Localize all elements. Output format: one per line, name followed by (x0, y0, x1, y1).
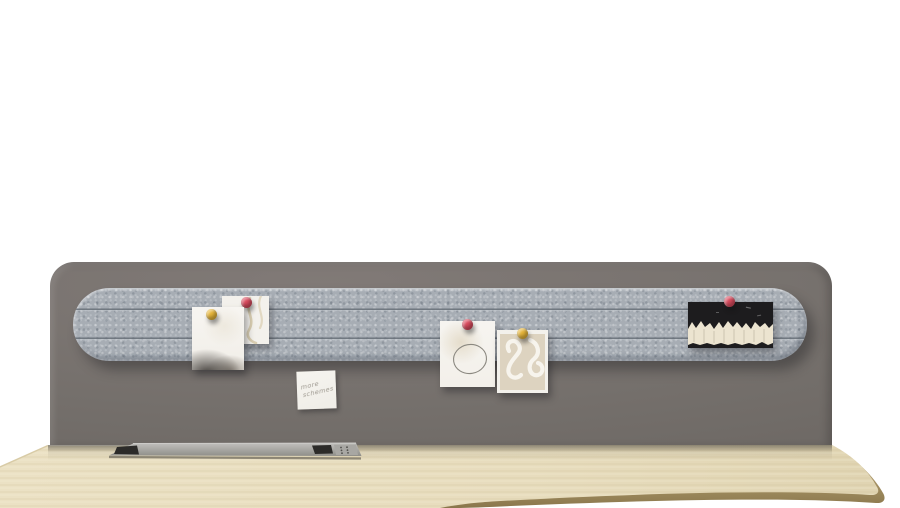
cable-slot-right (312, 445, 333, 454)
product-scene: more schemes (0, 0, 900, 508)
power-socket-plate (334, 445, 358, 456)
desk-surface (0, 0, 900, 508)
tray-top-rim (133, 443, 356, 444)
tray-bottom-shadow (109, 457, 361, 459)
